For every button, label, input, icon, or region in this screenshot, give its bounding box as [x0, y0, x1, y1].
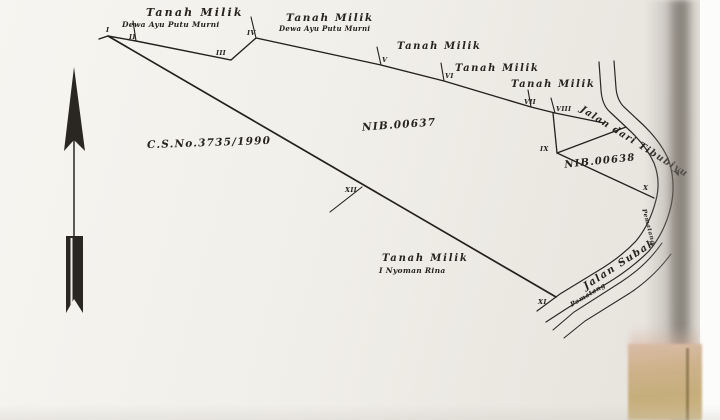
boundary-marker-12: XII — [345, 187, 357, 194]
boundary-marker-2: II — [129, 34, 136, 41]
boundary-marker-8: VIII — [556, 106, 571, 113]
owner-label-north1-title: Tanah Milik — [146, 7, 244, 18]
paper-noise-texture — [0, 0, 720, 420]
owner-label-north4-title: Tanah Milik — [455, 64, 539, 74]
scanned-cadastral-map-page: Tanah Milik Dewa Ayu Putu Murni Tanah Mi… — [0, 0, 720, 420]
boundary-marker-7: VII — [524, 99, 536, 106]
boundary-marker-5: V — [382, 57, 387, 64]
boundary-marker-11: XI — [538, 299, 547, 306]
owner-label-north1-name: Dewa Ayu Putu Murni — [122, 21, 219, 29]
boundary-marker-6: VI — [445, 73, 454, 80]
boundary-marker-4: IV — [247, 30, 256, 37]
boundary-marker-3: III — [216, 50, 226, 57]
cadastral-linework — [0, 0, 720, 420]
boundary-marker-1: I — [106, 27, 109, 34]
boundary-marker-9: IX — [540, 146, 549, 153]
owner-label-north2-title: Tanah Milik — [286, 13, 374, 24]
owner-label-north3-title: Tanah Milik — [397, 42, 481, 52]
owner-label-south-name: I Nyoman Rina — [379, 267, 446, 275]
scanner-background-strip — [700, 0, 720, 420]
owner-label-north5-title: Tanah Milik — [511, 80, 595, 90]
owner-label-south-title: Tanah Milik — [382, 254, 469, 264]
owner-label-north2-name: Dewa Ayu Putu Murni — [279, 25, 370, 32]
page-bottom-edge-shading — [0, 404, 720, 420]
